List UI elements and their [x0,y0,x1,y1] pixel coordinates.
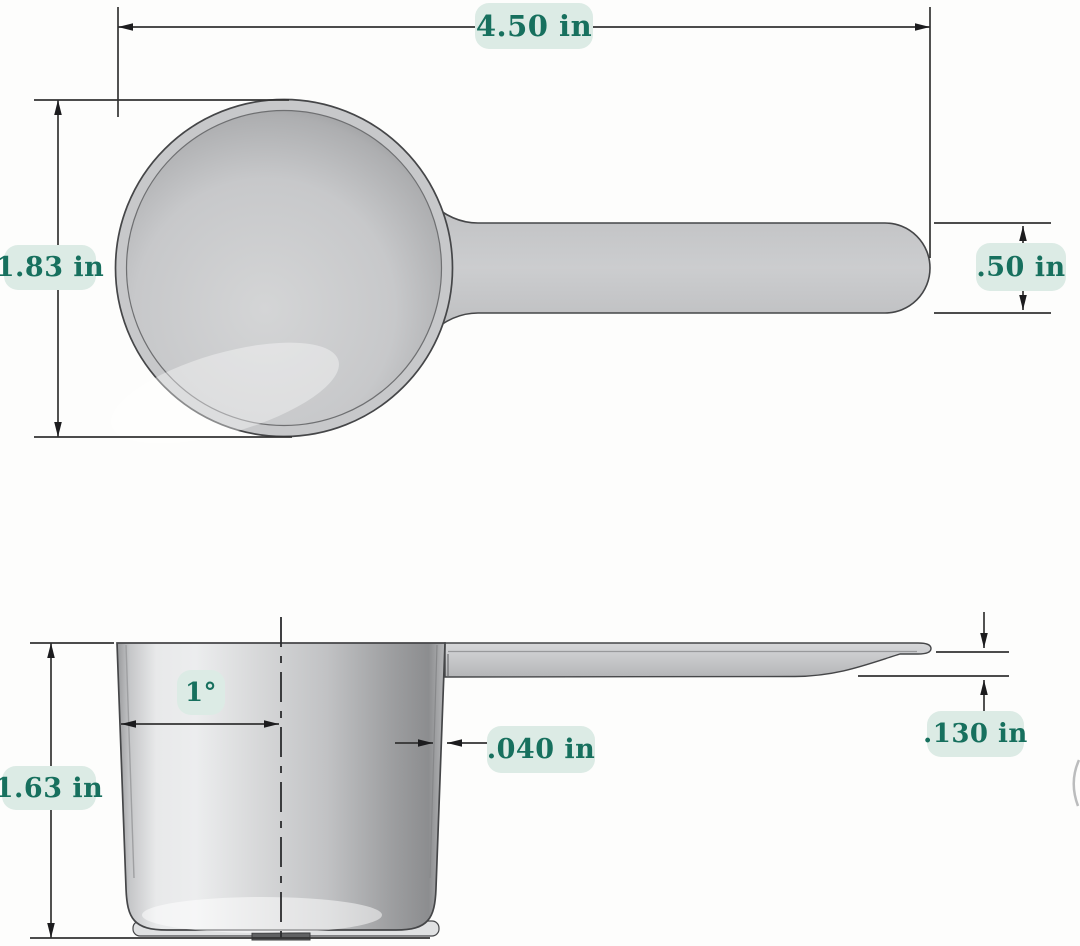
scoop-handle-top-view [430,202,930,334]
scoop-dimension-drawing: 4.50 in 1.83 in .50 in 1.63 in 1° .040 i… [0,0,1080,946]
edge-render-artifact [1074,760,1079,806]
dim-label-handle-thickness: .130 in [927,711,1024,757]
dim-label-handle-width: .50 in [976,243,1066,291]
dim-label-cup-height: 1.63 in [2,766,96,810]
cup-bottom-highlight [142,897,382,933]
top-view [101,100,930,464]
drawing-svg [0,0,1080,946]
dim-label-bowl-diameter: 1.83 in [4,245,96,290]
scoop-handle-side-view [445,643,931,677]
side-view [117,617,931,941]
dim-label-overall-length: 4.50 in [475,3,593,49]
dim-label-draft-angle: 1° [177,670,225,715]
dim-label-wall-thickness: .040 in [487,726,595,773]
